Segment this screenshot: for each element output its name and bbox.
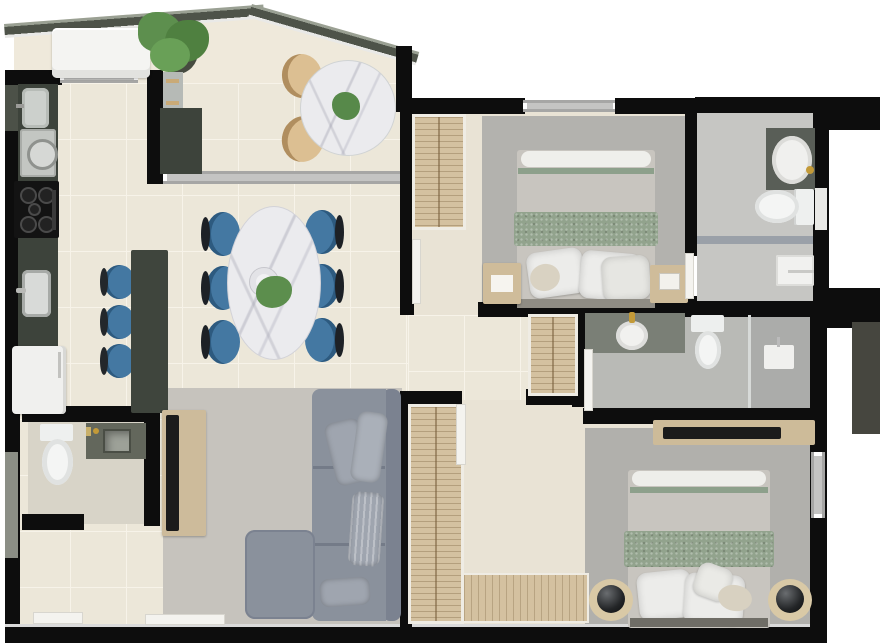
bed2-headboard bbox=[630, 618, 768, 627]
bed2-green-band bbox=[624, 531, 774, 567]
wall-lavabo-right bbox=[144, 406, 160, 526]
ac-bench bbox=[52, 28, 150, 78]
bed1-pillow-3 bbox=[601, 254, 652, 301]
wall-bedroom1-top-left bbox=[400, 98, 525, 114]
sofa-ottoman bbox=[245, 530, 315, 619]
shower1-bar bbox=[788, 270, 814, 273]
window-bedroom1 bbox=[523, 100, 617, 112]
kitchen-sink-faucet bbox=[16, 288, 26, 293]
sink-bathroom2 bbox=[616, 321, 648, 350]
bed2-mattress-top bbox=[632, 471, 766, 486]
wall-lavabo-bottom bbox=[22, 514, 84, 530]
laundry-tub-faucet bbox=[16, 104, 24, 108]
washer-door bbox=[27, 139, 58, 170]
faucet-bathroom1 bbox=[806, 166, 814, 174]
peninsula-counter bbox=[160, 108, 202, 174]
door-bedroom2 bbox=[457, 405, 465, 464]
nightstand1-left-paper bbox=[491, 275, 513, 292]
bed1-headboard bbox=[517, 299, 655, 308]
toilet1-bowl bbox=[755, 190, 799, 223]
wall-bathroom1-top bbox=[695, 97, 830, 113]
tv-bedroom2 bbox=[663, 427, 781, 439]
dresser-bedroom2 bbox=[462, 573, 589, 623]
laundry-tub bbox=[22, 88, 49, 128]
burner-3 bbox=[20, 216, 37, 233]
toilet2-tank bbox=[691, 315, 724, 332]
window-bedroom2 bbox=[811, 452, 825, 518]
toilet3-bowl bbox=[42, 439, 73, 485]
bed2-green-stripe bbox=[630, 487, 768, 493]
wall-bedroom1-bottom-stub bbox=[400, 302, 414, 315]
kitchen-island bbox=[131, 250, 168, 413]
wall-bathroom1-left-upper bbox=[685, 98, 697, 256]
door-bathroom1 bbox=[686, 254, 693, 298]
peninsula-handle-1 bbox=[166, 79, 179, 83]
bathroom1-tile-band bbox=[697, 236, 813, 244]
toilet2-bowl bbox=[695, 331, 721, 369]
bed1-green-stripe bbox=[518, 168, 654, 174]
shower2-plate bbox=[764, 345, 794, 369]
door-bathroom2 bbox=[585, 350, 592, 410]
bed1-green-band bbox=[514, 212, 658, 246]
wall-left-granite-upper bbox=[5, 85, 18, 131]
hall-closet bbox=[528, 314, 578, 396]
faucet-lavabo bbox=[93, 428, 99, 434]
peninsula-cabinet bbox=[163, 72, 183, 112]
nightstand1-right-object bbox=[659, 273, 680, 290]
shower2-arm bbox=[777, 337, 780, 347]
balcony-plant-foliage-c bbox=[150, 38, 190, 72]
sofa-pillow-4 bbox=[319, 576, 371, 607]
nightstand2-left-lamp bbox=[597, 585, 625, 613]
burner-1 bbox=[20, 187, 37, 204]
wall-shaft-right bbox=[852, 322, 880, 434]
floor-plan bbox=[0, 0, 880, 643]
faucet-bathroom2 bbox=[629, 312, 635, 323]
basin-lavabo bbox=[103, 429, 131, 453]
burner-5 bbox=[28, 203, 41, 216]
door-bedroom1 bbox=[413, 240, 420, 303]
door-entry-threshold bbox=[34, 613, 82, 623]
tv-living bbox=[166, 415, 179, 531]
peninsula-handle-2 bbox=[166, 101, 179, 105]
cooktop-knobs bbox=[52, 190, 56, 230]
sink-bathroom1 bbox=[772, 136, 812, 184]
balcony-table-plant bbox=[332, 92, 360, 120]
soap-lavabo bbox=[86, 427, 91, 436]
niche-bathroom1 bbox=[815, 188, 827, 230]
bed1-mattress-top bbox=[521, 151, 651, 167]
wall-bedroom1-left bbox=[400, 98, 412, 315]
door-entry-leaf bbox=[146, 615, 224, 624]
sliding-door-balcony bbox=[163, 171, 429, 184]
kitchen-sink bbox=[22, 270, 51, 317]
wardrobe-bedroom2 bbox=[408, 404, 464, 624]
wall-left-granite-lower bbox=[5, 452, 18, 558]
shower2-glass bbox=[748, 315, 751, 408]
wall-bathroom2-right bbox=[810, 315, 827, 410]
wardrobe-bedroom1 bbox=[412, 114, 466, 230]
nightstand2-right-lamp bbox=[776, 585, 804, 613]
sofa-pillow-3 bbox=[347, 491, 384, 567]
fridge-handle bbox=[58, 352, 61, 378]
